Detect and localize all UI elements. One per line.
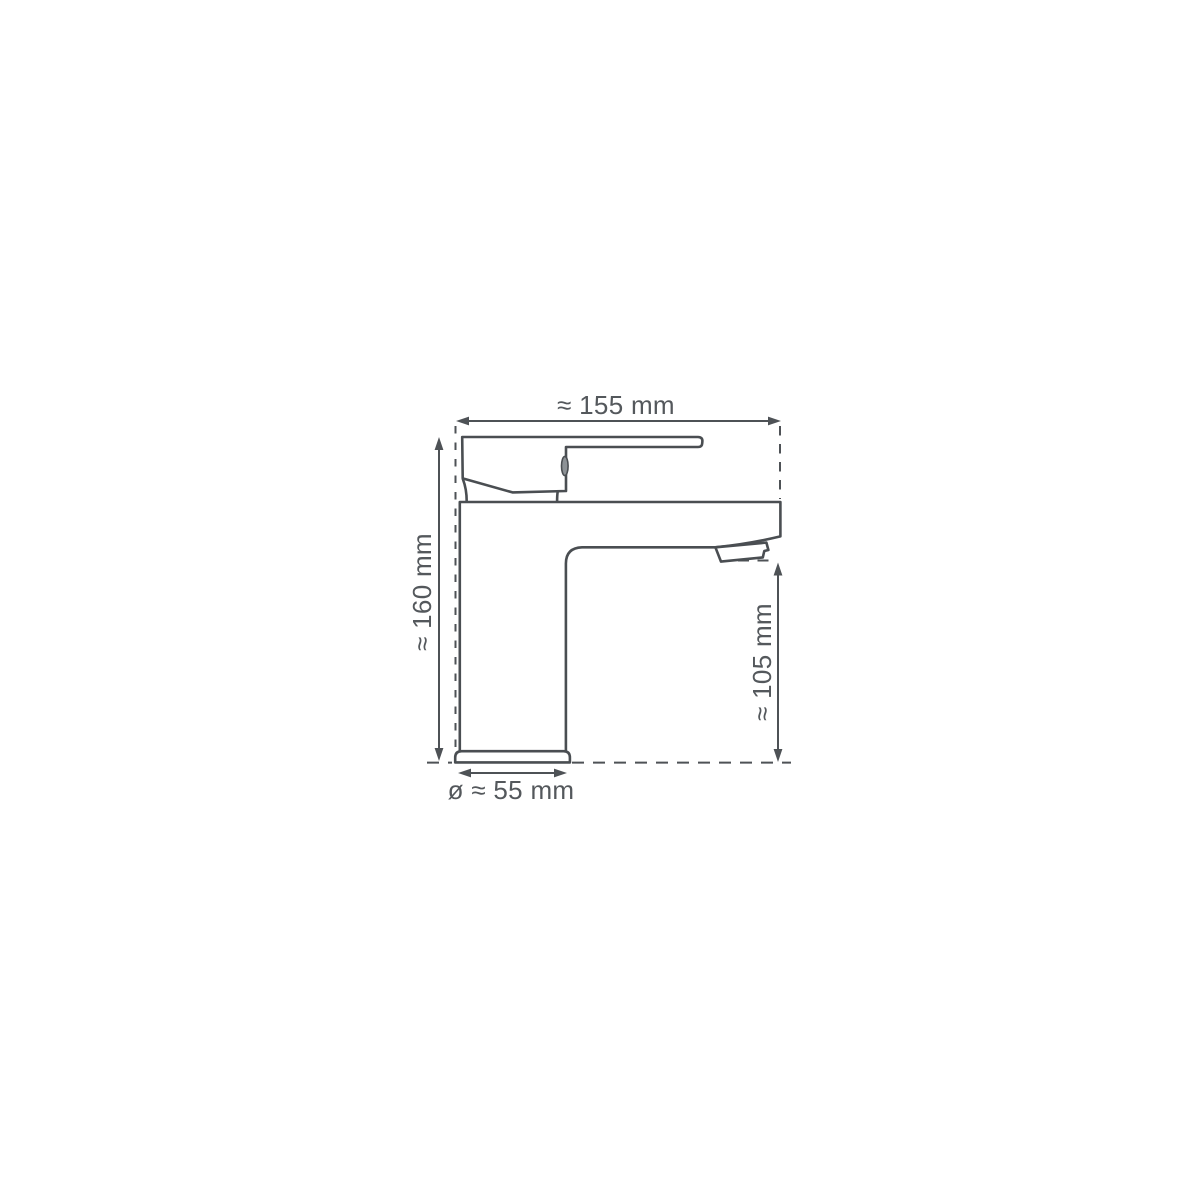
dimension-total-width: ≈ 155 mm: [456, 390, 781, 425]
label-spout-height: ≈ 105 mm: [747, 603, 777, 721]
label-total-height: ≈ 160 mm: [407, 533, 437, 651]
faucet-handle-pivot: [562, 456, 569, 475]
faucet-technical-drawing: ≈ 155 mm ≈ 160 mm ≈ 105 mm ø ≈ 55 mm: [0, 0, 1200, 1200]
dimension-total-height: ≈ 160 mm: [407, 437, 443, 761]
faucet-aerator: [715, 543, 768, 562]
faucet-handle-neck-left: [463, 479, 467, 501]
arrowhead-up-icon: [774, 563, 783, 576]
faucet-body: [460, 502, 781, 751]
faucet-base: [455, 751, 570, 762]
label-total-width: ≈ 155 mm: [557, 390, 675, 420]
faucet-handle: [462, 437, 702, 492]
arrowhead-down-icon: [774, 749, 783, 762]
arrowhead-up-icon: [435, 437, 444, 450]
arrowhead-right-icon: [768, 417, 781, 426]
technical-drawing-page: ≈ 155 mm ≈ 160 mm ≈ 105 mm ø ≈ 55 mm: [0, 0, 1200, 1200]
label-base-diameter: ø ≈ 55 mm: [448, 775, 575, 805]
faucet-outline: [455, 437, 780, 762]
arrowhead-left-icon: [456, 417, 469, 426]
dimension-spout-height: ≈ 105 mm: [747, 563, 782, 763]
faucet-handle-neck-right: [557, 492, 558, 501]
dimension-base-diameter: ø ≈ 55 mm: [448, 769, 575, 805]
arrowhead-down-icon: [435, 748, 444, 761]
